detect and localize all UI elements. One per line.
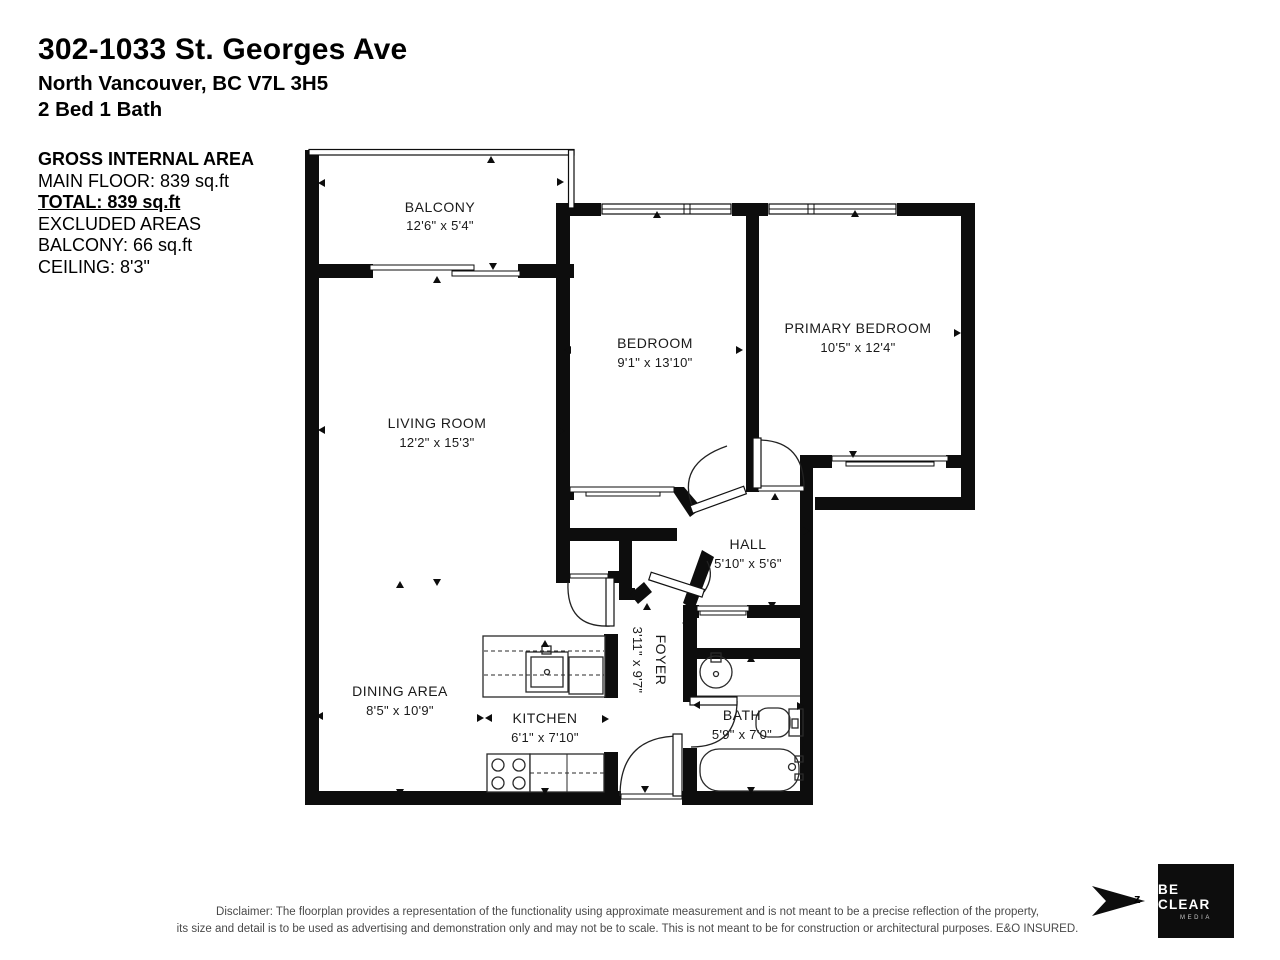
room-dims-bedroom: 9'1" x 13'10" [617,355,692,370]
area-summary: GROSS INTERNAL AREA MAIN FLOOR: 839 sq.f… [38,149,254,279]
balcony-sliding-door [370,265,520,276]
balcony-area: BALCONY: 66 sq.ft [38,235,254,257]
ceiling-height: CEILING: 8'3" [38,257,254,279]
header: 302-1033 St. Georges Ave North Vancouver… [38,34,407,123]
room-label-bedroom: BEDROOM [617,335,693,351]
disclaimer-line-2: its size and detail is to be used as adv… [20,921,1235,938]
disclaimer-line-1: Disclaimer: The floorplan provides a rep… [20,904,1235,921]
be-clear-media-logo: BE CLEAR MEDIA [1158,864,1234,938]
main-floor-area: MAIN FLOOR: 839 sq.ft [38,171,254,193]
page-title: 302-1033 St. Georges Ave [38,34,407,66]
room-dims-bath: 5'9" x 7'0" [712,727,772,742]
room-dims-foyer: 3'11" x 9'7" [630,627,645,694]
primary-closet-slider [832,456,948,466]
beds-baths-line: 2 Bed 1 Bath [38,97,407,123]
excluded-areas-heading: EXCLUDED AREAS [38,214,254,236]
logo-brand-line2: MEDIA [1180,915,1212,921]
room-label-kitchen: KITCHEN [513,710,578,726]
bedroom-window [601,201,732,217]
angled-wall-hall-sw [630,582,652,604]
logo-brand-line1: BE CLEAR [1158,882,1234,912]
hall-closet-threshold [570,574,608,578]
entry-door [620,734,682,796]
north-label: z [1134,891,1141,906]
north-arrow-icon [1092,884,1152,918]
bedroom-door [688,446,746,513]
floorplan-drawing: BALCONY 12'6" x 5'4" BEDROOM 9'1" x 13'1… [290,140,990,820]
dimension-arrows [316,156,961,796]
room-dims-dining-area: 8'5" x 10'9" [366,703,434,718]
room-label-dining-area: DINING AREA [352,683,448,699]
room-dims-living-room: 12'2" x 15'3" [399,435,474,450]
room-dims-primary-bedroom: 10'5" x 12'4" [820,340,895,355]
primary-door-threshold [758,486,804,491]
room-label-foyer: FOYER [653,635,669,686]
hall-closet-door [568,578,614,626]
bath-closet-slider [697,606,749,615]
room-dims-balcony: 12'6" x 5'4" [406,218,474,233]
bedroom-closet-slider [570,487,674,496]
disclaimer: Disclaimer: The floorplan provides a rep… [20,904,1235,937]
room-dims-hall: 5'10" x 5'6" [714,556,782,571]
primary-bedroom-door [753,438,804,488]
gross-area-heading: GROSS INTERNAL AREA [38,149,254,171]
address-line: North Vancouver, BC V7L 3H5 [38,71,407,97]
room-label-bath: BATH [723,707,761,723]
bathtub [700,749,799,791]
room-label-primary-bedroom: PRIMARY BEDROOM [784,320,931,336]
room-label-hall: HALL [729,536,766,552]
room-dims-kitchen: 6'1" x 7'10" [511,730,579,745]
room-label-living-room: LIVING ROOM [388,415,487,431]
primary-window [768,201,897,217]
tub-faucet-icon [789,764,796,771]
floorplan-page: 302-1033 St. Georges Ave North Vancouver… [0,0,1280,960]
angled-wall-bedroom [670,487,702,517]
room-label-balcony: BALCONY [405,199,476,215]
total-area: TOTAL: 839 sq.ft [38,192,254,214]
